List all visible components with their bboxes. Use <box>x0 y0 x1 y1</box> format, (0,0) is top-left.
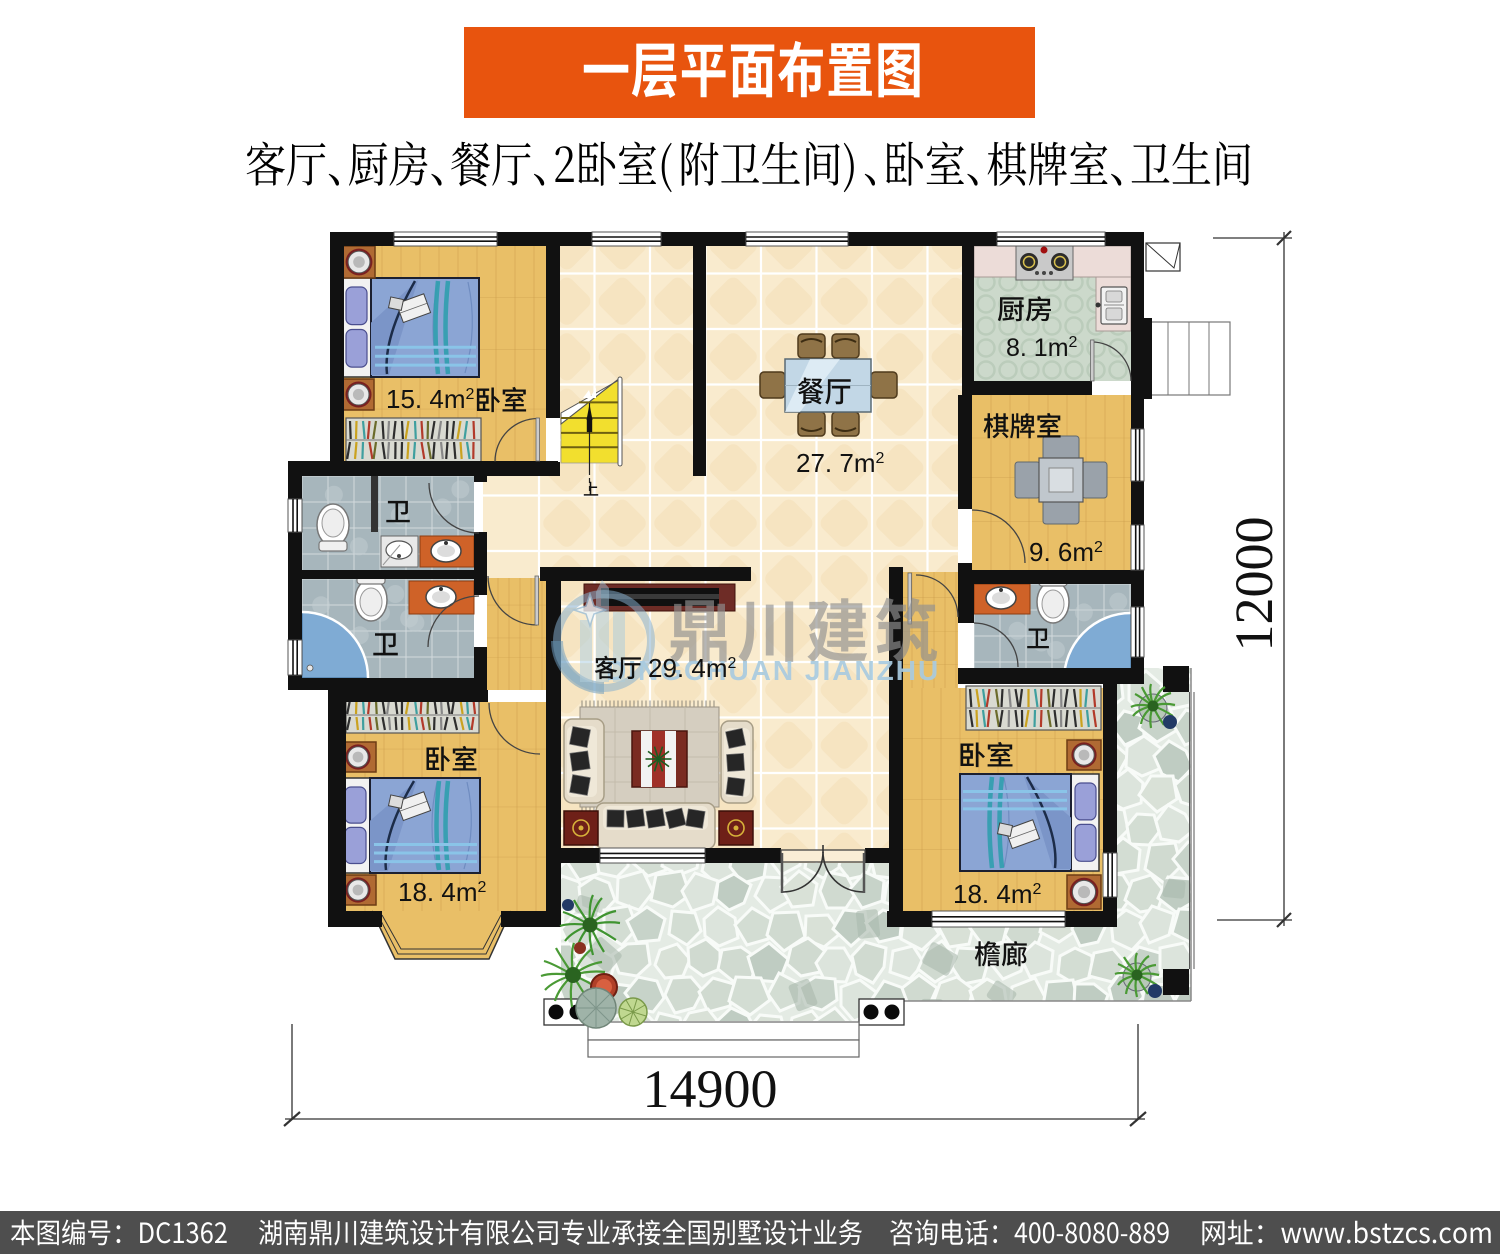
svg-text:18. 4m2: 18. 4m2 <box>398 877 487 907</box>
svg-text:18. 4m2: 18. 4m2 <box>953 879 1042 909</box>
svg-text:12000: 12000 <box>1224 517 1284 652</box>
svg-text:9. 6m2: 9. 6m2 <box>1029 537 1103 567</box>
svg-text:27. 7m2: 27. 7m2 <box>796 448 885 478</box>
svg-text:14900: 14900 <box>643 1059 778 1119</box>
svg-text:8. 1m2: 8. 1m2 <box>1006 334 1078 362</box>
svg-text:29. 4m2: 29. 4m2 <box>648 653 737 683</box>
svg-text:15. 4m2: 15. 4m2 <box>386 384 475 414</box>
